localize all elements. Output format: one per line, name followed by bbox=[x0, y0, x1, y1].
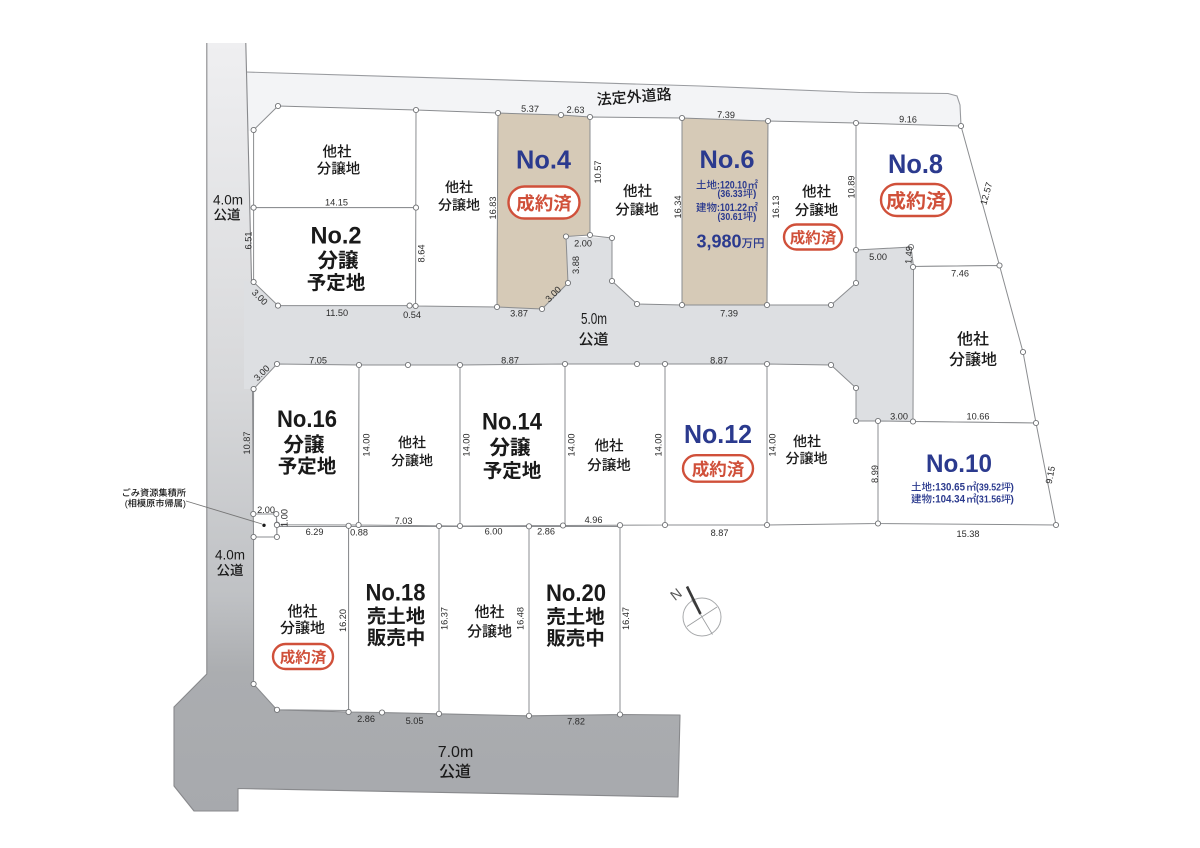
svg-text:4.0m: 4.0m bbox=[215, 548, 245, 563]
svg-text:16.34: 16.34 bbox=[673, 196, 683, 219]
svg-text:14.00: 14.00 bbox=[566, 434, 576, 457]
svg-text:5.37: 5.37 bbox=[521, 104, 539, 114]
svg-text:8.64: 8.64 bbox=[416, 245, 426, 263]
svg-text:2.86: 2.86 bbox=[537, 526, 555, 536]
svg-text:No.18: No.18 bbox=[366, 580, 426, 607]
svg-text:No.6: No.6 bbox=[700, 146, 755, 174]
svg-text:(36.33: (36.33 bbox=[718, 189, 743, 200]
svg-text:8.87: 8.87 bbox=[710, 355, 728, 365]
svg-text:15.38: 15.38 bbox=[957, 529, 980, 539]
svg-text:2.00: 2.00 bbox=[257, 505, 275, 515]
svg-text:8.87: 8.87 bbox=[501, 355, 519, 365]
svg-text:No.4: No.4 bbox=[516, 145, 572, 175]
svg-text:7.39: 7.39 bbox=[717, 110, 735, 120]
svg-text:(39.52: (39.52 bbox=[976, 483, 1001, 494]
svg-text:14.00: 14.00 bbox=[461, 434, 471, 457]
svg-text:5.05: 5.05 bbox=[406, 716, 424, 726]
svg-text:5.0m: 5.0m bbox=[581, 311, 607, 328]
svg-text:2.86: 2.86 bbox=[357, 714, 375, 724]
svg-text:16.83: 16.83 bbox=[488, 197, 498, 220]
svg-text:7.39: 7.39 bbox=[720, 308, 738, 318]
svg-text:6.00: 6.00 bbox=[485, 526, 503, 536]
svg-text:1.00: 1.00 bbox=[279, 509, 289, 527]
svg-text:No.16: No.16 bbox=[277, 406, 337, 433]
svg-text::104.34: :104.34 bbox=[932, 494, 966, 506]
svg-text:(30.61: (30.61 bbox=[718, 212, 743, 223]
svg-text:3.87: 3.87 bbox=[510, 308, 528, 318]
svg-text:7.03: 7.03 bbox=[395, 516, 413, 526]
svg-text:6.51: 6.51 bbox=[244, 232, 254, 250]
svg-text:10.66: 10.66 bbox=[967, 411, 990, 421]
svg-text:3,980: 3,980 bbox=[697, 232, 742, 252]
svg-text:2.00: 2.00 bbox=[574, 238, 592, 248]
svg-text:No.12: No.12 bbox=[684, 421, 752, 449]
svg-text:0.54: 0.54 bbox=[403, 310, 421, 320]
svg-text:4.0m: 4.0m bbox=[213, 193, 243, 208]
svg-text:): ) bbox=[1011, 495, 1014, 506]
svg-text:7.0m: 7.0m bbox=[438, 744, 474, 761]
svg-text:14.15: 14.15 bbox=[325, 197, 348, 207]
svg-text:11.50: 11.50 bbox=[326, 308, 348, 318]
svg-text:7.05: 7.05 bbox=[309, 355, 327, 365]
svg-text:4.96: 4.96 bbox=[585, 515, 603, 525]
svg-text:14.00: 14.00 bbox=[653, 434, 663, 457]
svg-text:No.10: No.10 bbox=[926, 450, 992, 478]
svg-text:8.87: 8.87 bbox=[711, 528, 729, 538]
svg-text:7.82: 7.82 bbox=[567, 716, 585, 726]
svg-text:10.89: 10.89 bbox=[846, 176, 856, 199]
svg-text:No.14: No.14 bbox=[482, 409, 543, 436]
svg-text:16.48: 16.48 bbox=[515, 607, 525, 630]
svg-text:16.37: 16.37 bbox=[439, 607, 449, 630]
svg-text:No.8: No.8 bbox=[888, 149, 943, 179]
svg-text:5.00: 5.00 bbox=[869, 252, 887, 262]
svg-text:2.63: 2.63 bbox=[566, 105, 584, 115]
svg-text:1.49: 1.49 bbox=[903, 246, 914, 264]
svg-text:10.57: 10.57 bbox=[593, 161, 603, 184]
svg-text:14.00: 14.00 bbox=[361, 434, 371, 457]
svg-text:16.20: 16.20 bbox=[338, 609, 348, 632]
svg-text:): ) bbox=[753, 189, 756, 200]
svg-text:16.47: 16.47 bbox=[621, 607, 631, 630]
svg-text:14.00: 14.00 bbox=[767, 434, 777, 457]
svg-text:): ) bbox=[753, 212, 756, 223]
svg-text:3.88: 3.88 bbox=[571, 256, 581, 274]
svg-text:10.87: 10.87 bbox=[242, 432, 252, 455]
svg-text:No.20: No.20 bbox=[546, 580, 606, 607]
svg-text:6.29: 6.29 bbox=[306, 527, 324, 537]
svg-text:): ) bbox=[1011, 483, 1014, 494]
svg-text::130.65: :130.65 bbox=[932, 482, 965, 494]
svg-text:8.99: 8.99 bbox=[870, 465, 880, 483]
svg-text:0.88: 0.88 bbox=[350, 527, 368, 537]
svg-text:(31.56: (31.56 bbox=[976, 495, 1001, 506]
svg-text:(: ( bbox=[125, 499, 128, 509]
svg-text:No.2: No.2 bbox=[311, 223, 362, 250]
svg-text:9.16: 9.16 bbox=[899, 114, 917, 124]
svg-text:16.13: 16.13 bbox=[771, 196, 781, 219]
svg-text:3.00: 3.00 bbox=[890, 411, 908, 421]
svg-text:7.46: 7.46 bbox=[951, 268, 969, 278]
svg-text:): ) bbox=[183, 499, 186, 509]
